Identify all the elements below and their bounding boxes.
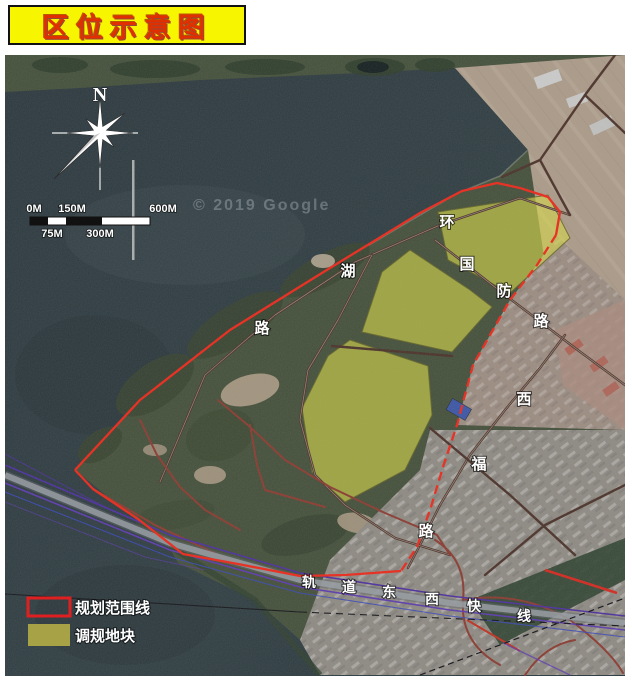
label-rail-3: 东 — [382, 584, 396, 600]
scale-150m: 150M — [58, 203, 86, 215]
compass-north-label: N — [93, 84, 108, 106]
label-rail-4: 西 — [425, 591, 439, 607]
label-rail-2: 道 — [342, 579, 356, 595]
legend-swatch-plot — [28, 624, 70, 646]
label-xifu-3: 路 — [418, 522, 434, 540]
scale-600m: 600M — [149, 203, 177, 215]
label-rail-1: 轨 — [302, 574, 316, 590]
label-guofang-3: 路 — [533, 312, 549, 330]
label-rail-5: 快 — [467, 598, 482, 614]
label-rail-6: 线 — [517, 608, 531, 624]
label-huanhu-2: 湖 — [340, 263, 355, 280]
label-huanhu-3: 路 — [254, 319, 270, 337]
legend-label-boundary: 规划范围线 — [75, 599, 150, 617]
label-guofang-2: 防 — [496, 282, 511, 300]
scale-0m: 0M — [26, 203, 41, 215]
label-guofang-1: 国 — [459, 256, 474, 273]
title-banner: 区位示意图 — [8, 5, 246, 45]
map-satellite-view: N 0M 150M 600M 75M 300M © 2019 Google 环 … — [5, 55, 625, 676]
satellite-map: N 0M 150M 600M 75M 300M © 2019 Google 环 … — [5, 55, 625, 676]
page-title: 区位示意图 — [42, 6, 212, 45]
google-watermark: © 2019 Google — [193, 197, 330, 214]
label-xifu-1: 西 — [516, 391, 531, 408]
scale-75m: 75M — [41, 228, 62, 240]
page: 区位示意图 — [0, 0, 632, 682]
label-xifu-2: 福 — [470, 455, 486, 473]
legend-label-plot: 调规地块 — [75, 627, 136, 645]
scale-300m: 300M — [86, 228, 114, 240]
label-huanhu-1: 环 — [439, 214, 454, 231]
